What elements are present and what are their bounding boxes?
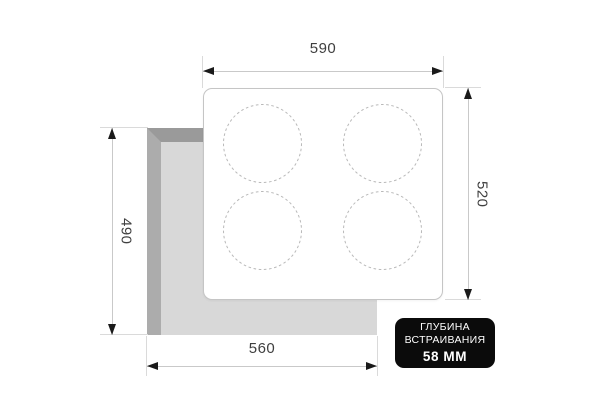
extension-line	[443, 56, 444, 88]
mounting-depth-badge: ГЛУБИНА ВСТРАИВАНИЯ 58 ММ	[395, 318, 495, 368]
burner-circle-top-left	[224, 105, 302, 183]
hob-dimension-diagram: 590 520 490 560 ГЛУБИНА ВСТРАИВАНИЯ 58 М…	[0, 0, 600, 420]
arrowhead-up-icon	[108, 128, 116, 139]
arrowhead-left-icon	[147, 362, 158, 370]
extension-line	[377, 336, 378, 376]
arrowhead-right-icon	[366, 362, 377, 370]
burner-circle-top-right	[344, 105, 422, 183]
arrowhead-down-icon	[464, 289, 472, 300]
burner-zones	[204, 89, 442, 299]
badge-text-line1: ГЛУБИНА	[420, 321, 470, 334]
dimension-value-bottom: 560	[147, 341, 377, 358]
burner-circle-bottom-left	[224, 192, 302, 270]
arrowhead-up-icon	[464, 88, 472, 99]
dimension-value-top: 590	[203, 41, 443, 58]
badge-text-line3: 58 ММ	[423, 348, 467, 366]
hob-panel	[203, 88, 443, 300]
dimension-line-left	[112, 128, 113, 335]
dimension-line-top	[203, 71, 443, 72]
burner-circle-bottom-right	[344, 192, 422, 270]
dimension-value-right: 520	[473, 88, 490, 300]
arrowhead-left-icon	[203, 67, 214, 75]
arrowhead-right-icon	[432, 67, 443, 75]
dimension-value-left: 490	[117, 128, 134, 335]
badge-text-line2: ВСТРАИВАНИЯ	[405, 334, 486, 347]
dimension-line-right	[468, 88, 469, 300]
dimension-line-bottom	[147, 366, 377, 367]
arrowhead-down-icon	[108, 324, 116, 335]
